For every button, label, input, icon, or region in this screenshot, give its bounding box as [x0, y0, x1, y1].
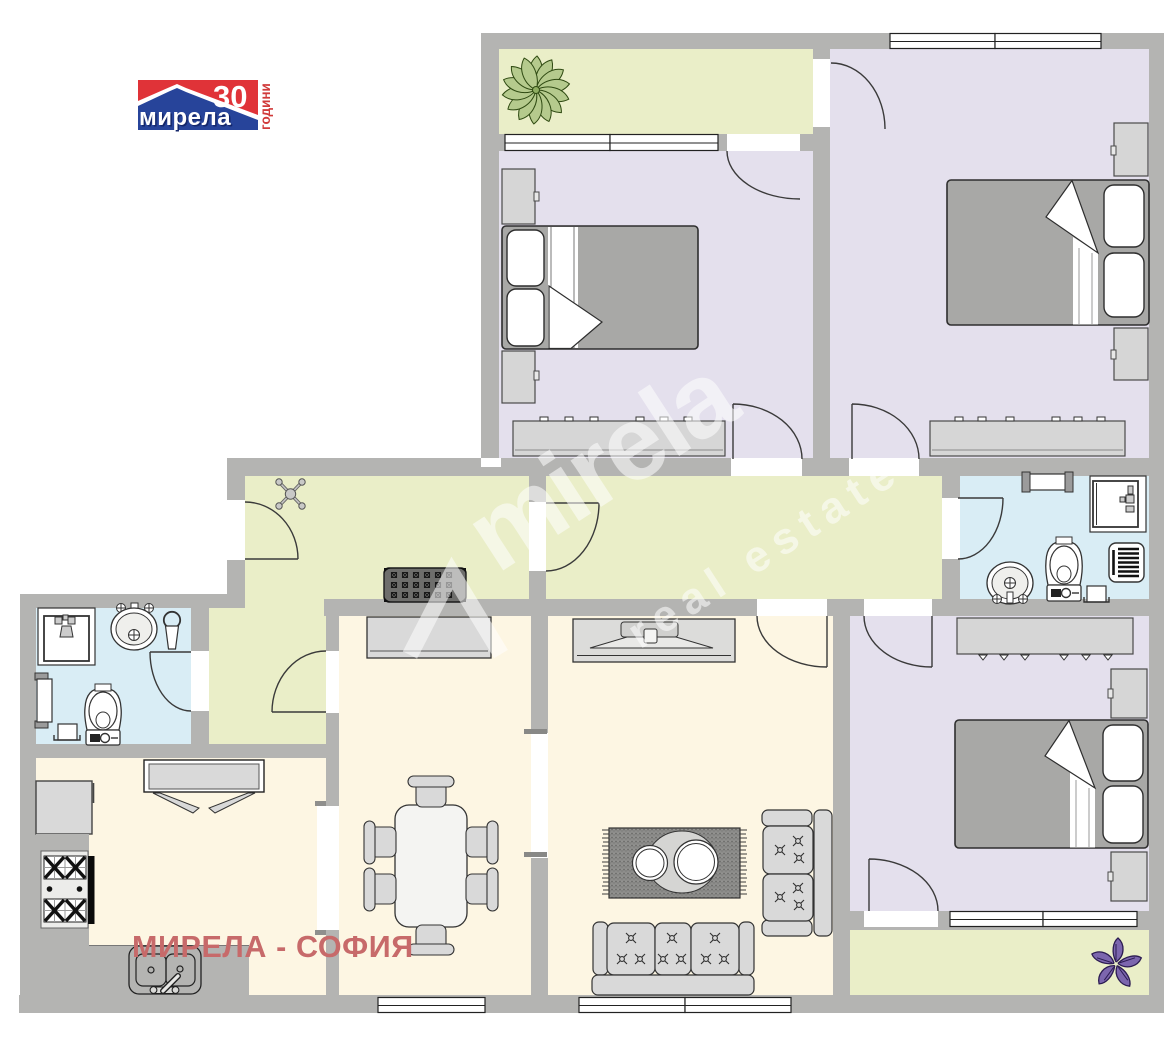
svg-text:МИРЕЛА - СОФИЯ: МИРЕЛА - СОФИЯ: [132, 930, 414, 964]
svg-text:30: 30: [213, 79, 247, 114]
svg-text:години: години: [258, 83, 273, 130]
